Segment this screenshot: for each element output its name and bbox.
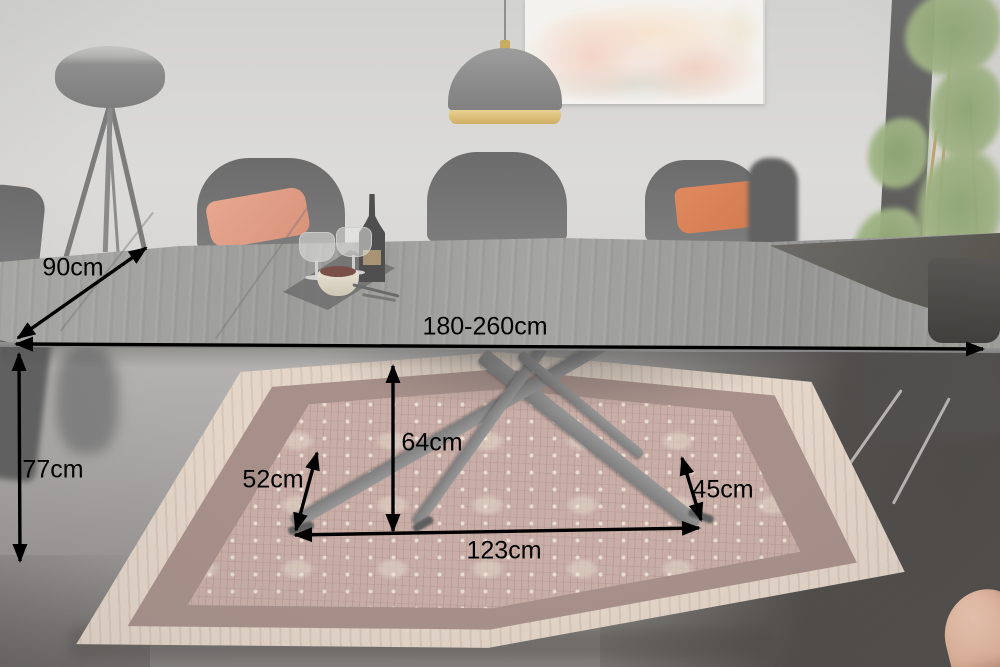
width-dimension-label: 180-260cm: [422, 313, 547, 342]
width-arrow: [16, 344, 983, 349]
height-arrow: [19, 354, 20, 561]
table-dimension-diagram: 90cm 180-260cm 77cm 64cm 52cm 45cm 123cm: [0, 0, 1000, 667]
frame-right-dimension-label: 45cm: [692, 476, 753, 505]
depth-dimension-label: 90cm: [42, 254, 103, 283]
height-dimension-label: 77cm: [22, 456, 83, 485]
frame-span-dimension-label: 123cm: [466, 537, 541, 566]
frame-left-dimension-label: 52cm: [242, 466, 303, 495]
frame-span-arrow: [295, 528, 699, 535]
frame-height-dimension-label: 64cm: [401, 429, 462, 458]
